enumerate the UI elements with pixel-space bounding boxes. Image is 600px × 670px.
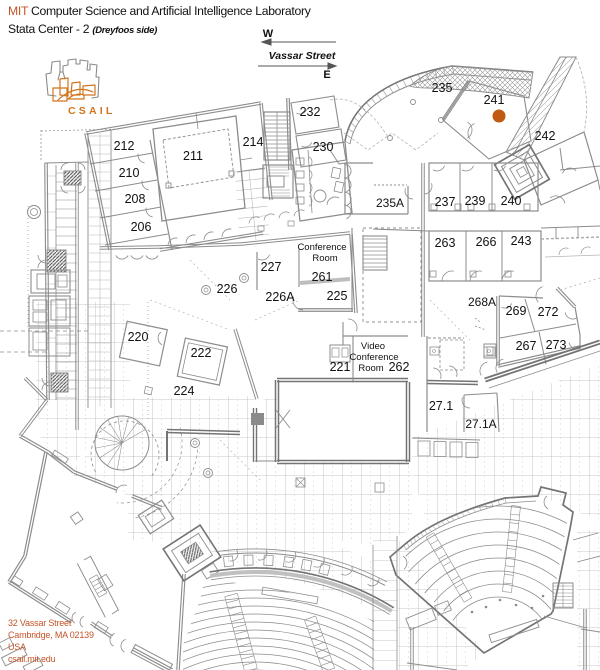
svg-text:243: 243	[511, 234, 532, 248]
svg-text:263: 263	[435, 236, 456, 250]
svg-text:221: 221	[330, 360, 351, 374]
svg-text:273: 273	[546, 338, 567, 352]
svg-text:235: 235	[432, 81, 453, 95]
svg-text:W: W	[263, 28, 274, 40]
svg-text:239: 239	[465, 194, 486, 208]
svg-text:266: 266	[476, 235, 497, 249]
svg-text:240: 240	[501, 194, 522, 208]
svg-text:267: 267	[516, 339, 537, 353]
svg-text:Cambridge, MA 02139: Cambridge, MA 02139	[8, 630, 94, 640]
svg-text:222: 222	[191, 346, 212, 360]
svg-text:235A: 235A	[376, 196, 404, 210]
svg-text:Conference: Conference	[297, 242, 346, 253]
svg-text:Stata Center - 2 (Dreyfoos sid: Stata Center - 2 (Dreyfoos side)	[8, 22, 157, 36]
svg-text:E: E	[323, 69, 330, 81]
svg-text:220: 220	[128, 330, 149, 344]
svg-text:211: 211	[183, 149, 203, 163]
svg-text:227: 227	[261, 260, 282, 274]
svg-text:224: 224	[174, 384, 195, 398]
svg-text:261: 261	[312, 270, 333, 284]
svg-text:206: 206	[131, 220, 152, 234]
svg-text:CSAIL: CSAIL	[68, 105, 116, 117]
svg-text:226A: 226A	[265, 290, 295, 304]
svg-text:32 Vassar Street: 32 Vassar Street	[8, 618, 72, 628]
svg-text:214: 214	[243, 135, 264, 149]
svg-text:Vassar Street: Vassar Street	[269, 50, 336, 62]
svg-text:226: 226	[217, 282, 238, 296]
svg-text:27.1A: 27.1A	[465, 417, 496, 431]
svg-text:212: 212	[114, 139, 135, 153]
svg-text:27.1: 27.1	[429, 399, 453, 413]
svg-text:242: 242	[535, 129, 556, 143]
svg-text:USA: USA	[8, 642, 26, 652]
svg-text:237: 237	[435, 195, 456, 209]
svg-text:Room: Room	[312, 253, 337, 264]
svg-text:262: 262	[389, 360, 410, 374]
svg-text:268A: 268A	[468, 295, 496, 309]
svg-text:208: 208	[125, 192, 146, 206]
svg-text:241: 241	[484, 93, 505, 107]
svg-text:269: 269	[506, 304, 527, 318]
svg-text:272: 272	[538, 305, 559, 319]
svg-text:230: 230	[313, 140, 334, 154]
svg-text:csail.mit.edu: csail.mit.edu	[8, 654, 56, 664]
svg-text:Video: Video	[361, 341, 385, 352]
svg-text:232: 232	[300, 105, 321, 119]
svg-text:Room: Room	[358, 363, 383, 374]
svg-text:MIT Computer Science and Artif: MIT Computer Science and Artificial Inte…	[8, 4, 312, 18]
svg-text:210: 210	[119, 166, 140, 180]
svg-text:225: 225	[327, 289, 348, 303]
